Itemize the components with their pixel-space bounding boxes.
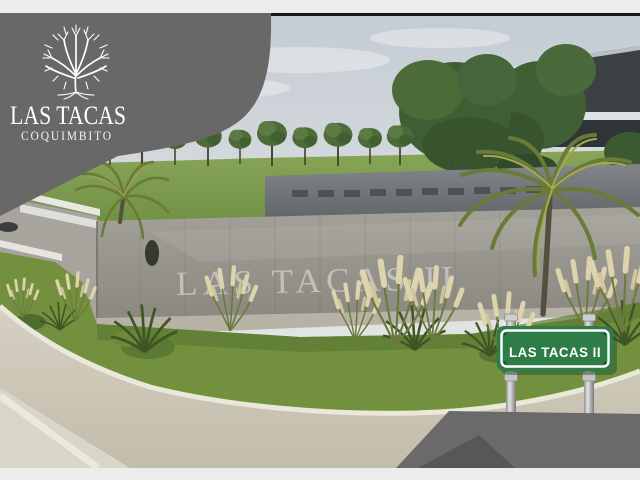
cypress-shrub <box>145 240 159 266</box>
brand-title: LAS TACAS <box>10 101 126 130</box>
top-strip <box>0 0 640 13</box>
render-illustration: LAS TACAS II <box>0 0 640 480</box>
bottom-strip <box>0 468 640 480</box>
post-cap-right <box>583 314 596 321</box>
flyer-canvas: LAS TACAS II <box>0 0 640 480</box>
sign-label: LAS TACAS II <box>509 345 601 360</box>
post-cap-left <box>505 314 518 321</box>
brand-subtitle: COQUIMBITO <box>21 129 113 143</box>
